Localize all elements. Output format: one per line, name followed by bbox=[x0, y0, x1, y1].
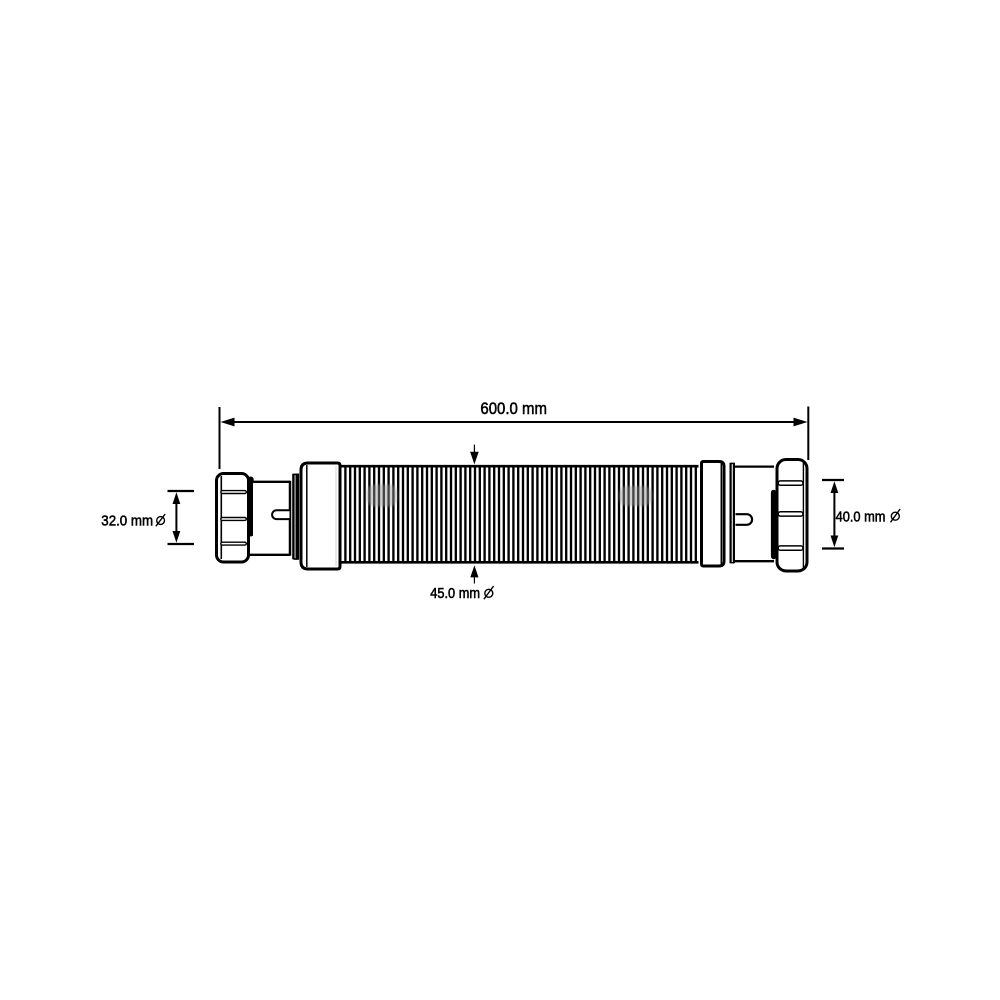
svg-text:600.0 mm: 600.0 mm bbox=[480, 399, 547, 418]
svg-text:40.0 mm: 40.0 mm bbox=[836, 509, 886, 525]
svg-text:45.0 mm: 45.0 mm bbox=[430, 586, 480, 602]
svg-text:32.0 mm: 32.0 mm bbox=[101, 513, 153, 529]
